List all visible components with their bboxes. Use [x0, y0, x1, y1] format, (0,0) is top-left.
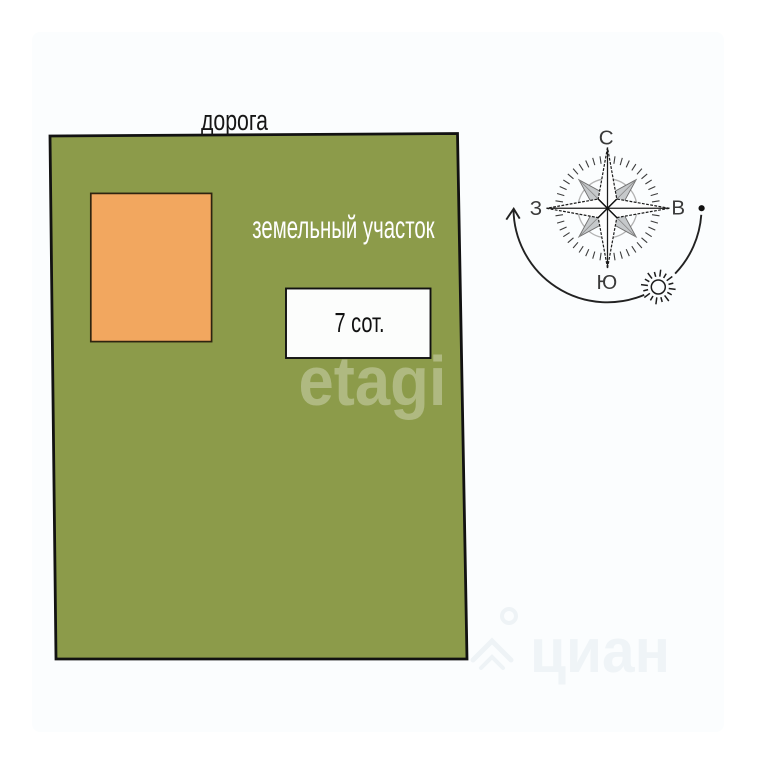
- svg-text:земельный участок: земельный участок: [252, 209, 434, 245]
- svg-text:циан: циан: [530, 617, 670, 686]
- svg-text:7 сот.: 7 сот.: [335, 307, 385, 338]
- svg-text:Ю: Ю: [597, 271, 618, 294]
- svg-text:дорога: дорога: [201, 105, 269, 137]
- svg-text:В: В: [671, 197, 685, 220]
- svg-text:З: З: [530, 197, 542, 220]
- svg-text:С: С: [599, 126, 614, 149]
